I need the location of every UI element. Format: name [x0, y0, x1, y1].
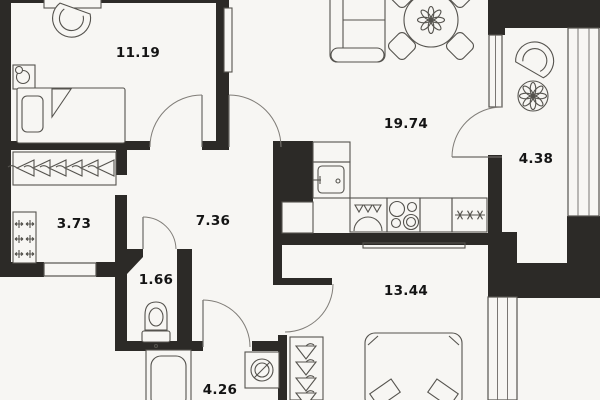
wall-shelf-icon — [224, 8, 232, 72]
balcony-table-icon — [518, 81, 548, 111]
bed-single-icon — [17, 88, 125, 143]
window-living-balcony-icon — [489, 35, 502, 107]
pillow-icon — [22, 96, 43, 132]
room-label-bathroom: 4.26 — [203, 382, 238, 398]
floor-plan: 11.19 19.74 4.38 3.73 7.36 1.66 13.44 4.… — [0, 0, 600, 400]
room-label-living-kitchen: 19.74 — [384, 116, 428, 132]
toilet-icon — [142, 302, 170, 348]
closet-hangers-icon — [290, 337, 323, 400]
washing-machine-icon — [245, 352, 279, 388]
nightstand-lamp-icon — [13, 65, 35, 89]
window-balcony-right-icon — [568, 28, 599, 216]
room-label-bedroom-1: 11.19 — [116, 45, 160, 61]
kitchen-sink-icon — [313, 166, 344, 193]
entry-niche — [44, 263, 96, 276]
room-label-hallway: 7.36 — [196, 213, 231, 229]
floor-plan-canvas: 11.19 19.74 4.38 3.73 7.36 1.66 13.44 4.… — [0, 0, 600, 400]
window-bedroom2-icon — [488, 297, 517, 400]
wardrobe-hangers-icon — [8, 152, 116, 185]
shelf-unit-icon — [13, 212, 36, 263]
desk-icon — [44, 0, 101, 8]
bathtub-icon — [146, 350, 191, 400]
room-label-dressing-room: 3.73 — [57, 216, 92, 232]
room-label-wc: 1.66 — [139, 272, 174, 288]
sofa-icon — [330, 0, 385, 62]
room-label-balcony: 4.38 — [519, 151, 554, 167]
bed-double-icon — [365, 333, 462, 400]
room-label-bedroom-2: 13.44 — [384, 283, 428, 299]
